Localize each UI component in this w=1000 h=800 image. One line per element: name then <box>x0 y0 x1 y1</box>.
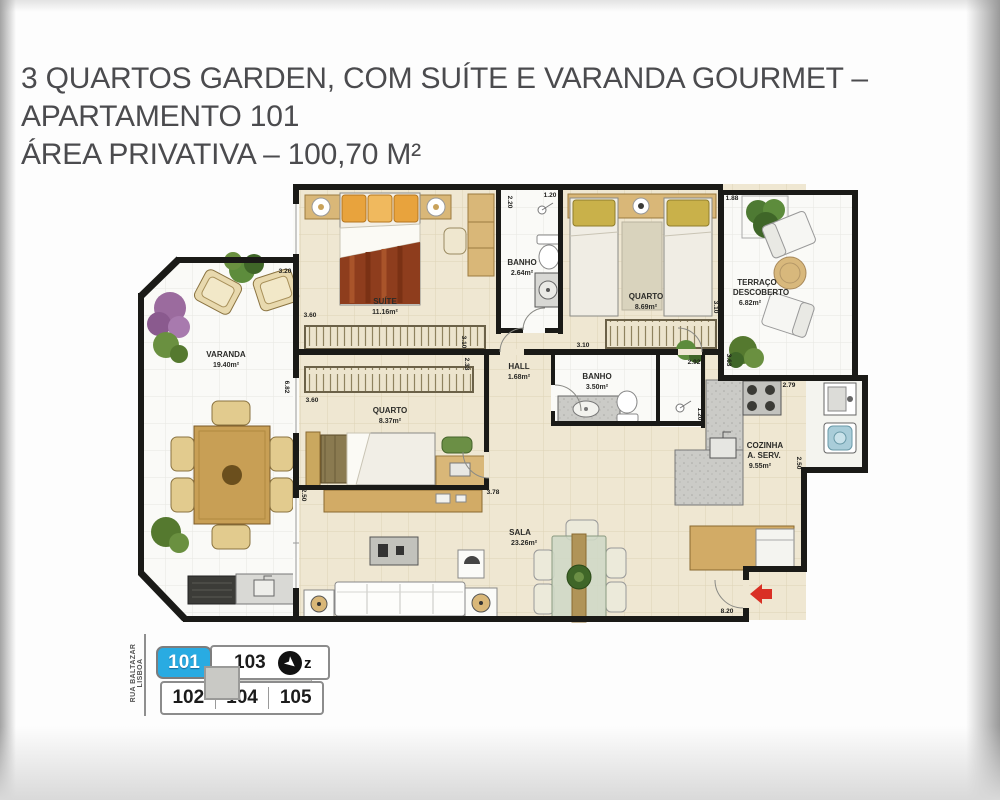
label-sala: SALA <box>509 528 531 537</box>
suite-chair <box>444 228 466 254</box>
label-banho1-area: 2.64m² <box>511 270 534 277</box>
label-suite: SUÍTE <box>373 297 397 306</box>
north-letter: z <box>304 655 312 672</box>
toilet-bowl <box>617 391 637 413</box>
dim-quarto2-w: 3.60 <box>306 397 319 404</box>
label-suite-area: 11.16m² <box>372 309 398 316</box>
quarto1-wardrobe <box>606 320 716 348</box>
dim-cozinha-h: 2.50 <box>795 457 802 470</box>
dim-banho1-w: 1.20 <box>544 192 557 199</box>
dim-mid-w: 3.10 <box>577 342 590 349</box>
round-table <box>774 257 806 289</box>
street-line <box>144 634 146 716</box>
dim-cozinha-w: 2.79 <box>783 382 796 389</box>
label-sala-area: 23.26m² <box>511 540 538 547</box>
dim-varanda-w: 3.20 <box>279 268 292 275</box>
dim-suite-h: 3.10 <box>460 336 467 349</box>
quarto2-furniture <box>306 432 486 486</box>
label-banho1: BANHO <box>507 258 536 267</box>
street-name: RUA BALTAZAR LISBOA <box>130 630 144 716</box>
dim-banho2-w: 2.92 <box>688 359 701 366</box>
dim-quarto1-h: 3.10 <box>712 301 719 314</box>
dim-entry-w: 8.20 <box>721 608 734 615</box>
dim-varanda-l: 6.82 <box>283 381 290 394</box>
stove <box>743 381 781 415</box>
label-hall: HALL <box>508 362 529 371</box>
units-bottom-row: 102 104 105 <box>160 681 324 715</box>
page-right-shade <box>966 0 1000 800</box>
label-varanda-area: 19.40m² <box>213 362 240 369</box>
elevator-core <box>204 666 240 700</box>
label-banho2: BANHO <box>582 372 611 381</box>
quarto2-wardrobe <box>305 367 473 392</box>
dim-quarto2-h: 2.33 <box>463 358 470 371</box>
unit-101-label: 101 <box>168 652 200 674</box>
label-quarto2: QUARTO <box>373 406 408 415</box>
dim-lavabo-w: 1.20 <box>696 408 703 421</box>
label-banho2-area: 3.50m² <box>586 384 609 391</box>
label-hall-area: 1.68m² <box>508 374 531 381</box>
title-line-1: 3 QUARTOS GARDEN, COM SUÍTE E VARANDA GO… <box>21 60 921 98</box>
dim-banho1-h: 2.20 <box>506 196 513 209</box>
suite-wardrobe <box>305 326 485 349</box>
title-line-2: APARTAMENTO 101 <box>21 98 921 136</box>
dim-terraco-w: 1.88 <box>726 195 739 202</box>
unit-105-label: 105 <box>269 687 322 709</box>
dim-sala-w: 3.78 <box>487 489 500 496</box>
slide-title: 3 QUARTOS GARDEN, COM SUÍTE E VARANDA GO… <box>21 60 921 174</box>
label-quarto1-area: 8.69m² <box>635 304 658 311</box>
page-bottom-shade <box>0 726 1000 800</box>
label-quarto2-area: 8.37m² <box>379 418 402 425</box>
floor-plan: SUÍTE 11.16m² BANHO 2.64m² QUARTO 8.69m²… <box>138 180 878 630</box>
label-terraco-1: TERRAÇO <box>737 278 777 287</box>
label-terraco-area: 6.82m² <box>739 300 762 307</box>
fridge <box>756 529 794 569</box>
toilet-tank <box>537 235 561 244</box>
label-quarto1: QUARTO <box>629 292 664 301</box>
label-cozinha-area: 9.55m² <box>749 463 772 470</box>
key-plan: RUA BALTAZAR LISBOA 101 103 ➤ z 102 104 … <box>118 630 343 722</box>
desk-chair <box>442 437 472 453</box>
label-cozinha-1: COZINHA <box>747 441 784 450</box>
north-indicator: ➤ z <box>278 650 320 676</box>
north-arrow-icon: ➤ <box>278 651 302 675</box>
label-varanda: VARANDA <box>206 350 246 359</box>
banho2-fixtures <box>558 391 638 422</box>
suite-dresser <box>468 194 494 276</box>
label-terraco-2: DESCOBERTO <box>733 288 789 297</box>
toilet-bowl <box>539 245 559 269</box>
tv-panel <box>370 537 418 565</box>
dim-suite-w: 3.60 <box>304 312 317 319</box>
title-line-3: ÁREA PRIVATIVA – 100,70 M² <box>21 136 921 174</box>
page-top-shade <box>0 0 1000 12</box>
dim-terraco-l: 3.63 <box>725 354 732 367</box>
page-left-shade <box>0 0 16 800</box>
dim-sala-l: 2.50 <box>300 489 307 502</box>
label-cozinha-2: A. SERV. <box>747 451 780 460</box>
